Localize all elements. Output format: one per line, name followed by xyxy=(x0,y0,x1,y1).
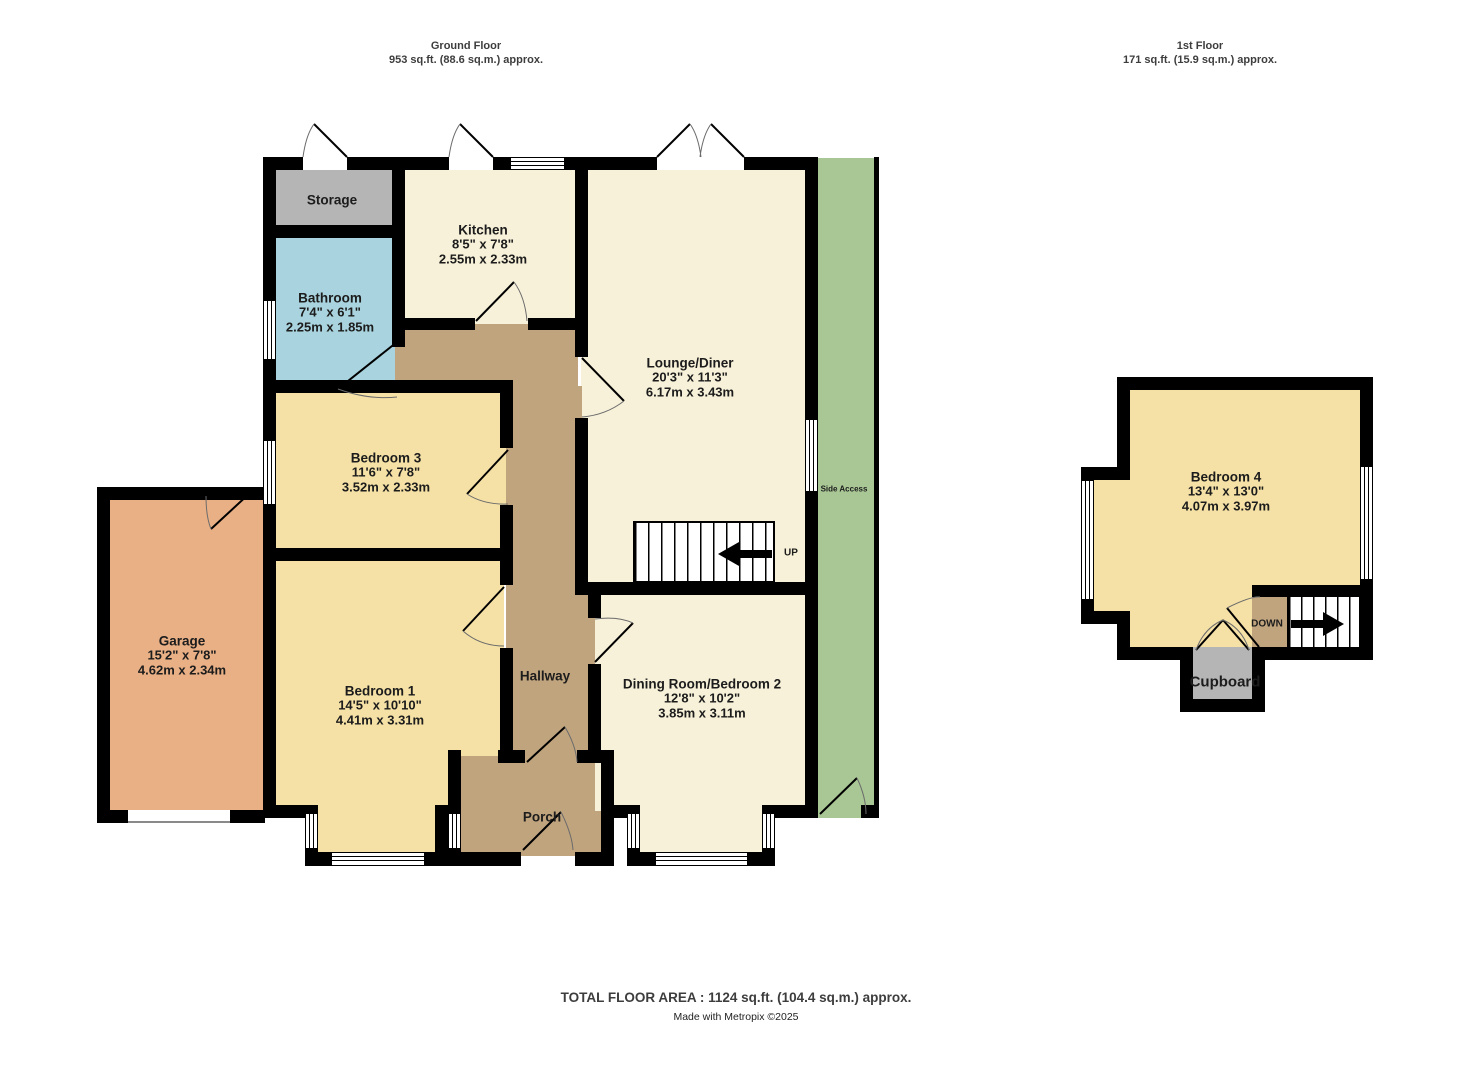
door-leaf xyxy=(314,124,347,157)
window xyxy=(805,419,818,492)
wall xyxy=(874,157,879,818)
ground-floor-header: Ground Floor 953 sq.ft. (88.6 sq.m.) app… xyxy=(266,40,666,68)
wall xyxy=(861,805,874,818)
wall xyxy=(575,418,588,595)
room-dims-metric: 3.85m x 3.11m xyxy=(623,707,781,722)
window xyxy=(510,157,565,170)
door-opening xyxy=(303,157,347,170)
wall xyxy=(588,664,601,763)
ground-floor-title: Ground Floor xyxy=(266,40,666,54)
window xyxy=(331,852,425,866)
up-label: UP xyxy=(784,547,798,558)
window xyxy=(263,300,276,360)
wall xyxy=(775,805,818,818)
room-dining-bay xyxy=(633,805,769,858)
side-access-label: Side Access xyxy=(821,484,868,493)
room-name: Dining Room/Bedroom 2 xyxy=(623,677,781,692)
room-name: Bedroom 4 xyxy=(1182,470,1270,485)
room-label-dining: Dining Room/Bedroom 2 12'8" x 10'2" 3.85… xyxy=(623,677,781,722)
room-dims-metric: 3.52m x 2.33m xyxy=(342,481,430,496)
room-label-bedroom4: Bedroom 4 13'4" x 13'0" 4.07m x 3.97m xyxy=(1182,470,1270,515)
room-label-lounge-diner: Lounge/Diner 20'3" x 11'3" 6.17m x 3.43m xyxy=(646,356,734,401)
wall xyxy=(1117,377,1130,480)
room-name: Bedroom 1 xyxy=(336,684,424,699)
window xyxy=(627,813,640,849)
wall xyxy=(588,595,601,618)
room-name: Cupboard xyxy=(1190,673,1261,690)
wall xyxy=(448,852,521,866)
wall xyxy=(575,582,818,595)
room-bedroom1-bay xyxy=(311,805,442,858)
door-arc xyxy=(303,124,314,157)
room-name: Lounge/Diner xyxy=(646,356,734,371)
wall xyxy=(575,157,588,357)
total-floor-area: TOTAL FLOOR AREA : 1124 sq.ft. (104.4 sq… xyxy=(386,990,1086,1005)
room-dims-metric: 4.62m x 2.34m xyxy=(138,664,226,679)
wall xyxy=(263,548,513,561)
window xyxy=(655,852,748,866)
wall xyxy=(575,852,614,866)
wall xyxy=(1180,699,1265,712)
stairs-up xyxy=(633,521,775,583)
room-dims-imperial: 20'3" x 11'3" xyxy=(646,371,734,386)
wall xyxy=(230,810,265,823)
stairs-down xyxy=(1287,595,1361,649)
wall xyxy=(528,318,575,330)
room-name: Bedroom 3 xyxy=(342,451,430,466)
room-label-hallway: Hallway xyxy=(520,668,570,683)
window xyxy=(762,813,775,849)
down-label: DOWN xyxy=(1251,618,1283,629)
room-label-bathroom: Bathroom 7'4" x 6'1" 2.25m x 1.85m xyxy=(286,291,374,336)
room-hallway-upper xyxy=(395,324,578,386)
room-label-storage: Storage xyxy=(307,192,357,207)
room-name: Bathroom xyxy=(286,291,374,306)
first-floor-title: 1st Floor xyxy=(1000,40,1400,54)
wall xyxy=(500,548,513,585)
window xyxy=(1081,480,1094,600)
floorplan-canvas: Ground Floor 953 sq.ft. (88.6 sq.m.) app… xyxy=(0,0,1473,1080)
door-leaf xyxy=(711,124,744,157)
window xyxy=(263,440,276,505)
room-dims-metric: 2.25m x 1.85m xyxy=(286,321,374,336)
room-dims-imperial: 14'5" x 10'10" xyxy=(336,699,424,714)
room-dims-metric: 4.07m x 3.97m xyxy=(1182,500,1270,515)
door-leaf xyxy=(460,124,493,157)
room-label-porch: Porch xyxy=(523,809,561,824)
door-opening xyxy=(657,157,744,170)
first-floor-area: 171 sq.ft. (15.9 sq.m.) approx. xyxy=(1000,54,1400,68)
door-arc xyxy=(700,124,711,157)
room-name: Hallway xyxy=(520,668,570,683)
wall xyxy=(97,487,265,500)
room-dims-imperial: 7'4" x 6'1" xyxy=(286,306,374,321)
room-dims-metric: 2.55m x 2.33m xyxy=(439,253,527,268)
window xyxy=(448,813,461,849)
room-name: Storage xyxy=(307,192,357,207)
window xyxy=(1360,466,1373,580)
first-floor-header: 1st Floor 171 sq.ft. (15.9 sq.m.) approx… xyxy=(1000,40,1400,68)
room-dims-imperial: 11'6" x 7'8" xyxy=(342,466,430,481)
room-label-cupboard: Cupboard xyxy=(1190,673,1261,690)
room-label-bedroom3: Bedroom 3 11'6" x 7'8" 3.52m x 2.33m xyxy=(342,451,430,496)
wall xyxy=(398,318,475,330)
wall xyxy=(97,487,110,823)
room-label-kitchen: Kitchen 8'5" x 7'8" 2.55m x 2.33m xyxy=(439,223,527,268)
room-porch xyxy=(454,756,608,856)
room-dims-imperial: 15'2" x 7'8" xyxy=(138,649,226,664)
wall xyxy=(263,380,513,393)
door-opening xyxy=(449,157,493,170)
room-dims-imperial: 13'4" x 13'0" xyxy=(1182,485,1270,500)
wall xyxy=(500,380,513,448)
wall xyxy=(500,648,513,763)
garage-door-opening xyxy=(128,810,230,823)
room-dims-imperial: 12'8" x 10'2" xyxy=(623,692,781,707)
door-arc xyxy=(449,124,460,157)
room-dims-metric: 6.17m x 3.43m xyxy=(646,386,734,401)
room-hallway-mid xyxy=(506,386,582,601)
wall xyxy=(97,810,128,823)
wall xyxy=(1117,377,1373,390)
door-arc xyxy=(690,124,701,157)
door-leaf xyxy=(657,124,690,157)
window xyxy=(305,813,318,849)
wall xyxy=(601,750,614,866)
room-name: Garage xyxy=(138,634,226,649)
wall xyxy=(263,225,392,238)
room-label-bedroom1: Bedroom 1 14'5" x 10'10" 4.41m x 3.31m xyxy=(336,684,424,729)
room-bedroom4-bay xyxy=(1088,474,1130,617)
room-dims-metric: 4.41m x 3.31m xyxy=(336,714,424,729)
metropix-credit: Made with Metropix ©2025 xyxy=(386,1011,1086,1023)
room-name: Porch xyxy=(523,809,561,824)
room-name: Kitchen xyxy=(439,223,527,238)
room-label-garage: Garage 15'2" x 7'8" 4.62m x 2.34m xyxy=(138,634,226,679)
ground-floor-area: 953 sq.ft. (88.6 sq.m.) approx. xyxy=(266,54,666,68)
room-dims-imperial: 8'5" x 7'8" xyxy=(439,238,527,253)
